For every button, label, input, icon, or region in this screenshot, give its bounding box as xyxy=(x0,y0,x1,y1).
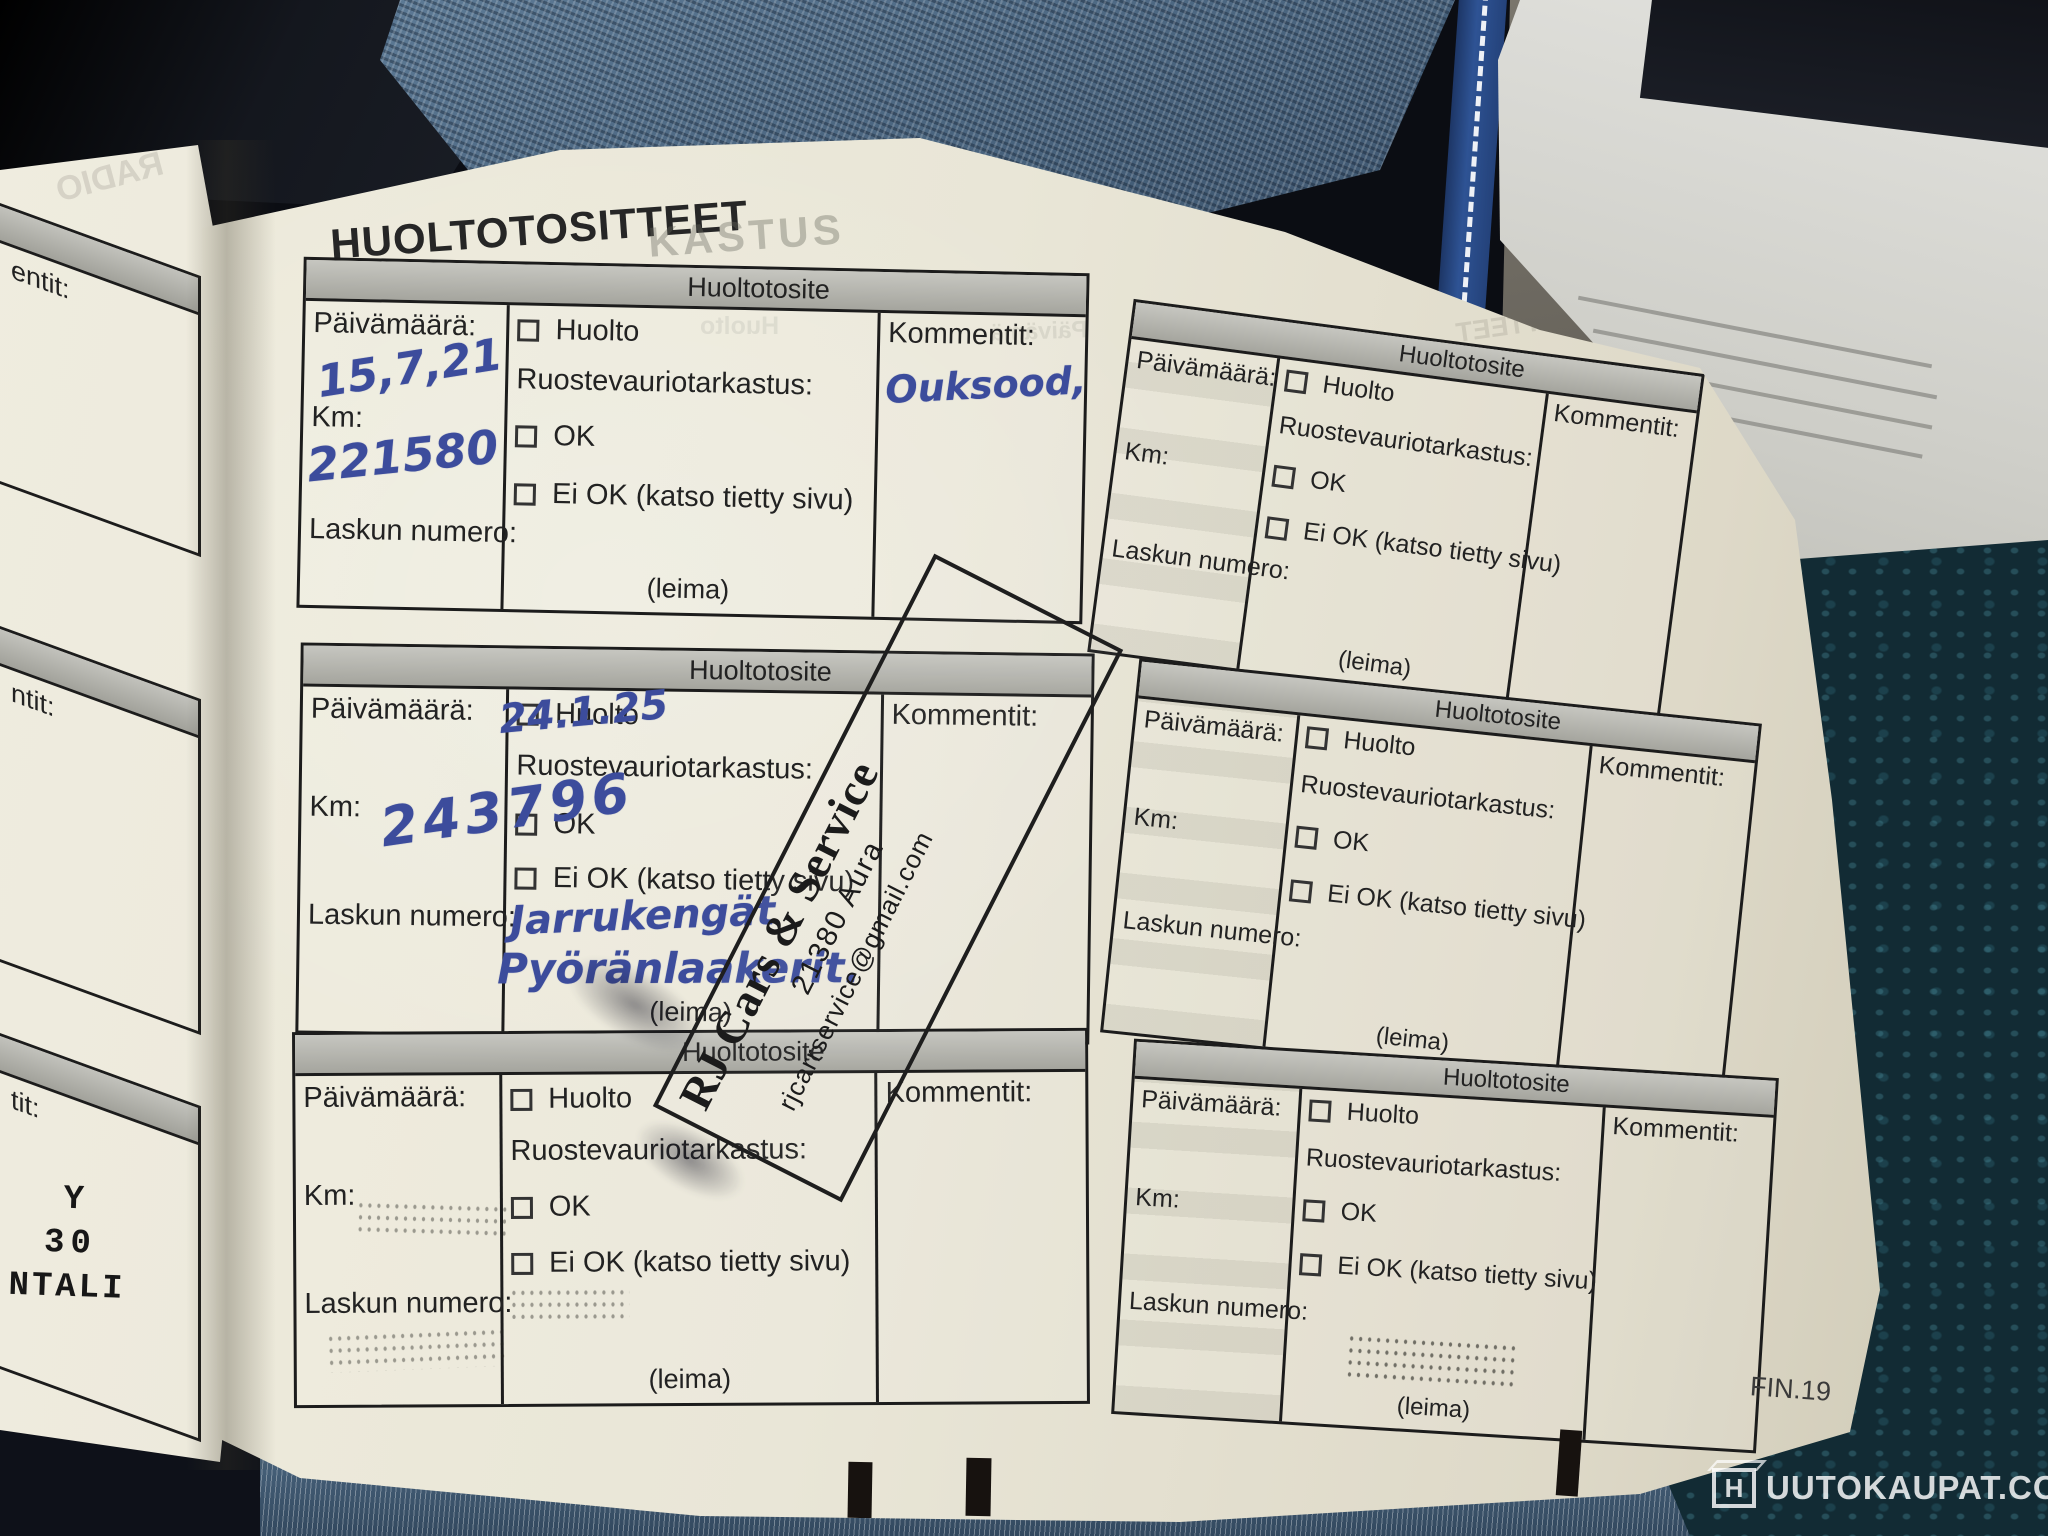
service-checkbox xyxy=(517,319,539,341)
service-label: Huolto xyxy=(1342,726,1417,762)
not-ok-label: Ei OK (katso tietty sivu) xyxy=(1326,879,1587,935)
km-label: Km: xyxy=(304,1180,356,1213)
service-box-6: Huoltotosite Päivämäärä: Km: Laskun nume… xyxy=(1111,1039,1779,1454)
date-label: Päivämäärä: xyxy=(303,1081,466,1115)
watermark-logo: H xyxy=(1712,1468,1756,1508)
date-label: Päivämäärä: xyxy=(1140,1085,1282,1123)
stamp-placeholder: (leima) xyxy=(504,570,872,609)
stamp-placeholder: (leima) xyxy=(504,1363,877,1396)
rust-check-label: Ruostevauriotarkastus: xyxy=(1277,411,1534,473)
ok-label: OK xyxy=(1332,826,1371,859)
ok-checkbox xyxy=(1294,825,1318,849)
not-ok-label: Ei OK (katso tietty sivu) xyxy=(1337,1251,1598,1296)
page-code: FIN.19 xyxy=(1749,1371,1832,1408)
ok-checkbox xyxy=(515,425,537,447)
service-checkbox xyxy=(1305,726,1329,750)
binding-mark xyxy=(965,1458,991,1516)
binding-mark xyxy=(1556,1429,1583,1496)
not-ok-checkbox xyxy=(511,1252,533,1274)
ok-label: OK xyxy=(549,1191,591,1224)
comments-label-fragment: ntit: xyxy=(11,677,55,724)
not-ok-checkbox xyxy=(1264,516,1289,541)
not-ok-checkbox xyxy=(1299,1253,1322,1276)
left-page-box-header xyxy=(0,601,198,738)
comments-label: Kommentit: xyxy=(1612,1112,1740,1149)
invoice-label: Laskun numero: xyxy=(309,513,518,550)
photo-of-service-booklet: RADIO entit: ntit: tit: Y 30 NTALI HUOLT… xyxy=(0,0,2048,1536)
stamp-placeholder: (leima) xyxy=(1282,1385,1584,1431)
comments-label: Kommentit: xyxy=(888,317,1035,353)
ok-checkbox xyxy=(1302,1199,1325,1222)
service-box-1: Huoltotosite Päivämäärä: 15,7,21 Km: 221… xyxy=(296,257,1089,624)
not-ok-checkbox xyxy=(515,867,537,889)
date-label: Päivämäärä: xyxy=(311,693,474,728)
km-label: Km: xyxy=(311,401,363,435)
service-checkbox xyxy=(1308,1099,1331,1122)
not-ok-label: Ei OK (katso tietty sivu) xyxy=(549,1245,851,1280)
invoice-label: Laskun numero: xyxy=(304,1287,512,1321)
ok-label: OK xyxy=(1340,1198,1378,1229)
service-box-4: Huoltotosite Päivämäärä: Km: Laskun nume… xyxy=(1100,658,1762,1097)
watermark-text: UUTOKAUPAT.COM xyxy=(1766,1469,2048,1507)
km-label: Km: xyxy=(1132,803,1179,836)
service-checkbox xyxy=(510,1088,532,1110)
handwritten-note: Jarrukengät xyxy=(510,888,777,944)
service-label: Huolto xyxy=(548,1082,632,1115)
ok-label: OK xyxy=(1308,466,1348,499)
left-page-box: entit: xyxy=(0,174,201,557)
partial-ink-stamp: Y 30 NTALI xyxy=(8,1176,143,1312)
ink-speckles xyxy=(1344,1332,1517,1392)
faded-stamp-residue xyxy=(509,1286,629,1319)
binding-mark xyxy=(848,1462,873,1518)
ok-checkbox xyxy=(1271,464,1296,489)
service-checkbox xyxy=(1284,369,1309,394)
comments-label: Kommentit: xyxy=(885,1076,1032,1110)
ok-label: OK xyxy=(553,420,596,454)
invoice-label: Laskun numero: xyxy=(1128,1287,1309,1327)
rust-check-label: Ruostevauriotarkastus: xyxy=(1299,770,1556,826)
service-label: Huolto xyxy=(1321,370,1396,408)
handwritten-comment: Ouksood, xyxy=(884,358,1087,412)
booklet-spine xyxy=(186,140,276,1470)
service-label: Huolto xyxy=(1346,1098,1420,1131)
service-label: Huolto xyxy=(555,314,640,349)
faded-stamp-residue xyxy=(326,1326,507,1373)
left-page-box: ntit: xyxy=(0,597,201,1035)
ok-checkbox xyxy=(511,1196,533,1218)
left-page-box-header xyxy=(0,1008,198,1145)
watermark: H UUTOKAUPAT.COM xyxy=(1712,1468,2048,1508)
comments-label: Kommentit: xyxy=(1597,751,1726,793)
invoice-label: Laskun numero: xyxy=(308,899,516,935)
faded-stamp-residue xyxy=(356,1199,507,1239)
not-ok-checkbox xyxy=(1288,879,1312,903)
comments-label-fragment: tit: xyxy=(11,1084,40,1125)
rust-check-label: Ruostevauriotarkastus: xyxy=(516,363,813,402)
not-ok-label: Ei OK (katso tietty sivu) xyxy=(1302,517,1563,580)
km-label: Km: xyxy=(309,791,361,825)
watermark-logo-letter: H xyxy=(1725,1473,1744,1504)
km-label: Km: xyxy=(1134,1183,1180,1215)
rust-check-label: Ruostevauriotarkastus: xyxy=(1305,1143,1562,1188)
date-label: Päivämäärä: xyxy=(1142,705,1285,749)
not-ok-checkbox xyxy=(514,483,536,505)
not-ok-label: Ei OK (katso tietty sivu) xyxy=(552,478,854,517)
km-label: Km: xyxy=(1123,437,1171,472)
